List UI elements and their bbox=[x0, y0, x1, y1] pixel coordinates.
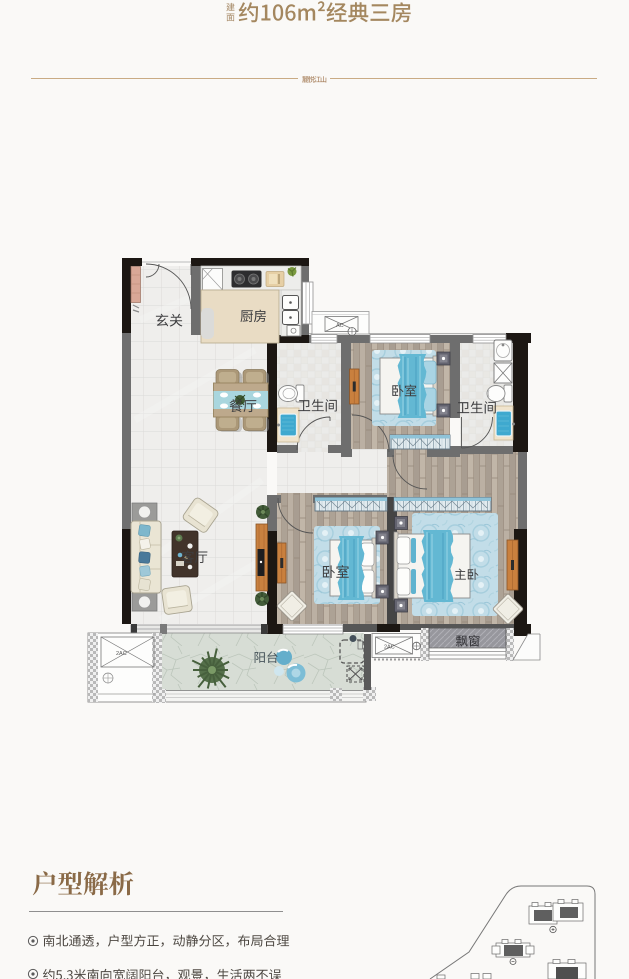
svg-text:2AC: 2AC bbox=[384, 645, 395, 651]
svg-text:2AC: 2AC bbox=[116, 651, 127, 657]
svg-text:AC: AC bbox=[336, 323, 344, 329]
